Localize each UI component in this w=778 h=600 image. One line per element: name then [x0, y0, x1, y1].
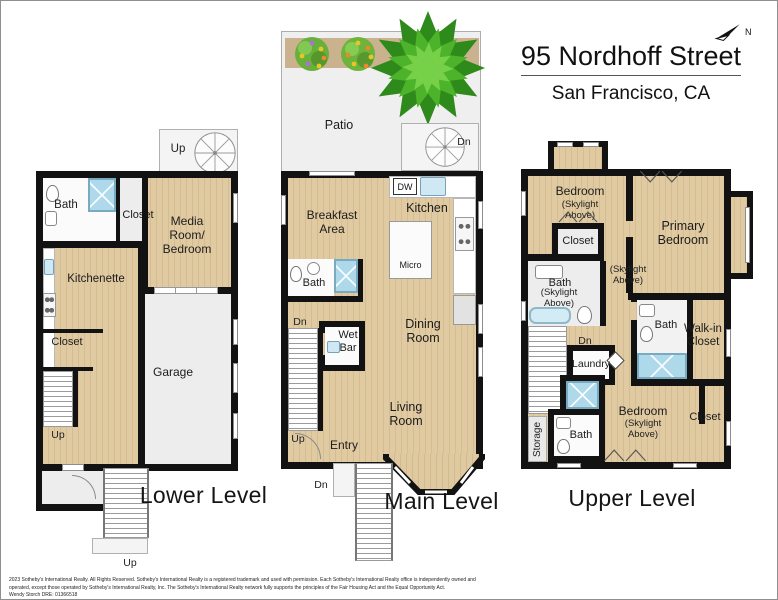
room-label-bath: Bath [44, 199, 88, 212]
main-spiral-dn-label: Dn [452, 136, 476, 148]
room-note-bedroom2: (Skylight Above) [613, 419, 673, 440]
room-label-closet1: Closet [558, 235, 598, 248]
shower-tile [334, 259, 358, 293]
window-bay-marks [603, 449, 647, 462]
room-label-wet-bar: Wet Bar [333, 329, 363, 354]
disclaimer-line3: Wendy Storch DRE: 01366518 [9, 592, 771, 600]
window [745, 207, 750, 263]
wall [626, 176, 633, 221]
wall [631, 379, 731, 386]
window [281, 195, 286, 225]
page-subtitle: San Francisco, CA [506, 83, 756, 105]
compass-north-label: N [745, 27, 752, 37]
room-label-living: Living Room [376, 400, 436, 429]
lower-ext-up-label: Up [110, 557, 150, 569]
window [478, 347, 483, 377]
patio-door-opening [309, 171, 355, 176]
room-label-dining: Dining Room [393, 317, 453, 346]
window [673, 463, 697, 468]
room-label-closet2: Closet [683, 411, 727, 424]
wall [528, 254, 604, 261]
page-title-text: 95 Nordhoff Street [521, 41, 741, 76]
shower-tile [566, 381, 599, 409]
hall-skylight-note: (Skylight Above) [597, 265, 659, 286]
lower-spiral-up-label: Up [164, 143, 192, 155]
wall [288, 296, 363, 302]
door-opening [62, 464, 84, 471]
wall [43, 329, 103, 333]
wall [73, 371, 78, 427]
main-ext-dn-label: Dn [307, 479, 335, 491]
wall [43, 241, 143, 248]
window [726, 329, 731, 357]
room-label-breakfast: Breakfast Area [295, 209, 369, 237]
window [557, 463, 581, 468]
sink-icon [45, 211, 57, 226]
lower-level-title: Lower Level [131, 482, 276, 509]
disclaimer: 2023 Sotheby's International Realty. All… [9, 577, 771, 600]
wall [318, 328, 323, 431]
window [233, 363, 238, 393]
closet-door-marks [556, 211, 600, 223]
dishwasher: DW [393, 178, 417, 195]
stair-landing [333, 463, 355, 497]
sink-icon [556, 417, 571, 429]
lower-vestibule [36, 471, 109, 511]
room-label-entry: Entry [321, 439, 367, 453]
shower-tile [637, 353, 687, 379]
main-spiral-landing: Dn [401, 123, 479, 171]
upper-level-walls: Bedroom (Skylight Above) Primary Bedroom… [521, 169, 731, 469]
bathtub-icon [529, 307, 571, 324]
room-label-main-bath: Bath [293, 277, 335, 290]
sink-icon [639, 304, 655, 317]
refrigerator [453, 295, 476, 325]
window [557, 142, 573, 147]
bush-icon [292, 34, 332, 74]
stove-icon [455, 217, 474, 251]
window [521, 191, 526, 216]
window [521, 301, 526, 321]
storage-floor: Storage [528, 416, 547, 462]
wall [358, 259, 363, 301]
room-label-kitchenette: Kitchenette [58, 273, 134, 286]
room-label-bedroom1: Bedroom [547, 185, 613, 199]
room-label-bath3: Bath [563, 429, 599, 442]
window [583, 142, 599, 147]
room-label-storage: Storage [529, 417, 546, 461]
compass-icon [713, 19, 743, 45]
window [478, 201, 483, 229]
window [726, 421, 731, 446]
room-label-primary: Primary Bedroom [645, 219, 721, 248]
upper-level-title: Upper Level [559, 485, 705, 512]
room-label-walkin: Walk-in Closet [679, 323, 727, 349]
interior-stairs [288, 328, 318, 431]
interior-stairs [43, 371, 73, 427]
room-label-bath2: Bath [649, 319, 683, 332]
main-level-title: Main Level [369, 488, 514, 515]
spiral-stair-icon [193, 131, 237, 175]
stair-landing [92, 538, 148, 554]
upper-level-plan: Bedroom (Skylight Above) Primary Bedroom… [519, 139, 755, 471]
microwave-label: Micro [390, 260, 431, 270]
window [233, 413, 238, 439]
sink-icon [420, 177, 446, 196]
window-bay-marks [639, 170, 683, 183]
stove-icon [43, 293, 56, 317]
tree-icon [369, 9, 487, 127]
room-label-kitchen: Kitchen [399, 201, 455, 215]
sink-icon [307, 262, 320, 275]
wall [138, 248, 145, 464]
disclaimer-line1: 2023 Sotheby's International Realty. All… [9, 577, 771, 585]
upper-stairs-dn-label: Dn [571, 335, 599, 347]
window [478, 304, 483, 334]
room-label-media: Media Room/ Bedroom [156, 215, 218, 256]
kitchen-island: Micro [389, 221, 432, 279]
lower-stairs-up-label: Up [38, 429, 78, 441]
main-level-walls: DW Kitchen Micro Breakfast Area Bath Wet… [281, 171, 483, 469]
lower-spiral-landing: Up [159, 129, 238, 175]
room-label-bedroom2: Bedroom [613, 405, 673, 419]
room-label-garage: Garage [143, 366, 203, 380]
lower-level-walls: Bath Closet Media Room/ Bedroom Kitchene… [36, 171, 238, 471]
main-stairs-dn-label: Dn [285, 316, 315, 328]
window [233, 319, 238, 345]
room-note-bath1: (Skylight Above) [527, 288, 591, 309]
sink-icon [44, 259, 54, 275]
window [233, 193, 238, 223]
page-title: 95 Nordhoff Street [506, 41, 756, 76]
floor-plan-sheet: 95 Nordhoff Street San Francisco, CA N U… [0, 0, 778, 600]
main-level-plan: Patio [281, 9, 486, 565]
disclaimer-line2: operated, except those operated by Sothe… [9, 585, 771, 593]
room-label-patio: Patio [304, 118, 374, 132]
garage-door [154, 287, 218, 294]
shower-tile [88, 178, 116, 212]
room-label-closet-mid: Closet [38, 336, 96, 349]
room-label-laundry: Laundry [565, 358, 617, 370]
door-opening [631, 302, 637, 320]
